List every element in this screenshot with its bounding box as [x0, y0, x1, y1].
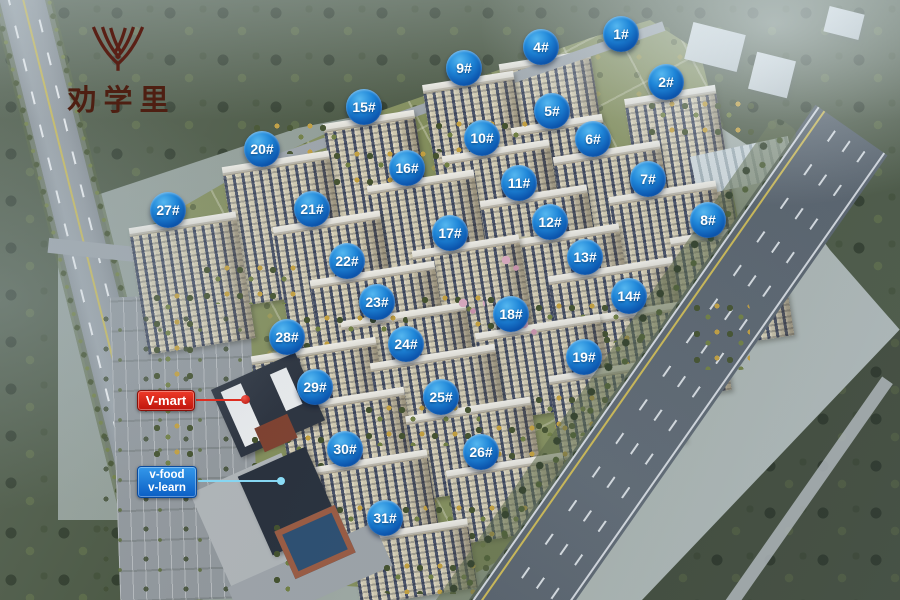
blossom-grove — [455, 295, 485, 319]
building-marker-6[interactable]: 6# — [575, 121, 611, 157]
vfood-label-line2: v-learn — [148, 482, 186, 495]
building-marker-12[interactable]: 12# — [532, 204, 568, 240]
building-marker-23[interactable]: 23# — [359, 284, 395, 320]
building-marker-25[interactable]: 25# — [423, 379, 459, 415]
building-marker-5[interactable]: 5# — [534, 93, 570, 129]
vfood-leader-dot — [277, 477, 285, 485]
site-plan-rendering: V-mart v-food v-learn 1#2#4#5#6#7#8#9#10… — [0, 0, 900, 600]
tree-grove — [645, 98, 755, 138]
tree-grove — [200, 262, 300, 304]
building-marker-19[interactable]: 19# — [566, 339, 602, 375]
building-marker-30[interactable]: 30# — [327, 431, 363, 467]
building-marker-9[interactable]: 9# — [446, 50, 482, 86]
building-marker-29[interactable]: 29# — [297, 369, 333, 405]
building-marker-11[interactable]: 11# — [501, 165, 537, 201]
building-marker-15[interactable]: 15# — [346, 89, 382, 125]
tree-grove — [690, 300, 750, 370]
building-marker-8[interactable]: 8# — [690, 202, 726, 238]
vmart-label-text: V-mart — [146, 393, 186, 408]
building-marker-20[interactable]: 20# — [244, 131, 280, 167]
tree-grove — [362, 402, 480, 446]
building-marker-22[interactable]: 22# — [329, 243, 365, 279]
vfood-label-line1: v-food — [149, 469, 184, 482]
building-marker-4[interactable]: 4# — [523, 29, 559, 65]
building-marker-28[interactable]: 28# — [269, 319, 305, 355]
brand-logo: 劝学里 — [56, 24, 180, 119]
building-marker-26[interactable]: 26# — [463, 434, 499, 470]
building-marker-13[interactable]: 13# — [567, 239, 603, 275]
building-marker-10[interactable]: 10# — [464, 120, 500, 156]
vfood-vlearn-label[interactable]: v-food v-learn — [137, 466, 197, 498]
blossom-grove — [498, 252, 524, 272]
building-marker-2[interactable]: 2# — [648, 64, 684, 100]
brand-logo-icon — [87, 24, 149, 72]
vmart-leader-line — [196, 399, 244, 401]
building-marker-31[interactable]: 31# — [367, 500, 403, 536]
vmart-leader-dot — [241, 395, 250, 404]
building-marker-27[interactable]: 27# — [150, 192, 186, 228]
building-marker-21[interactable]: 21# — [294, 191, 330, 227]
building-marker-16[interactable]: 16# — [389, 150, 425, 186]
building-marker-1[interactable]: 1# — [603, 16, 639, 52]
building-marker-18[interactable]: 18# — [493, 296, 529, 332]
building-marker-14[interactable]: 14# — [611, 278, 647, 314]
building-marker-17[interactable]: 17# — [432, 215, 468, 251]
vmart-label[interactable]: V-mart — [137, 390, 195, 411]
building-marker-24[interactable]: 24# — [388, 326, 424, 362]
vfood-leader-line — [198, 480, 280, 482]
brand-logo-text: 劝学里 — [56, 77, 180, 119]
building-marker-7[interactable]: 7# — [630, 161, 666, 197]
